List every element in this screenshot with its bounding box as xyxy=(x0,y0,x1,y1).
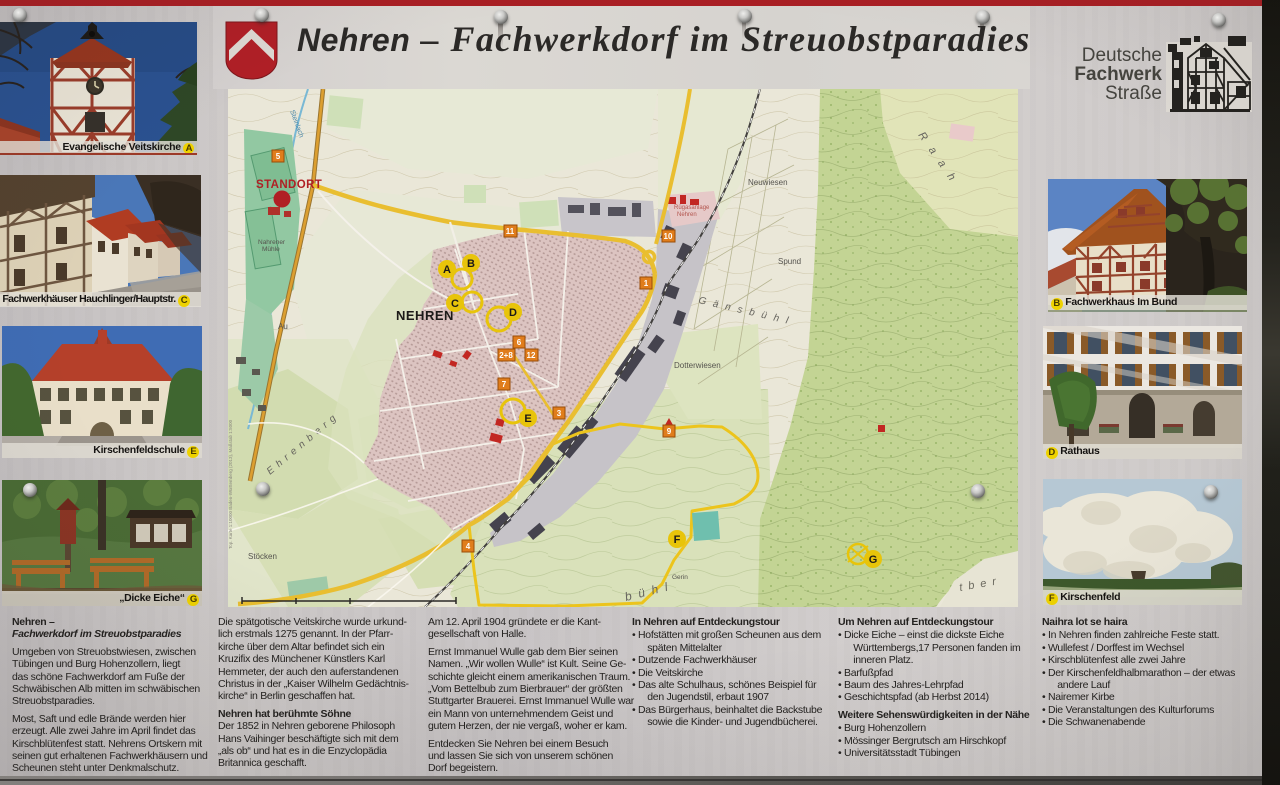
svg-text:3: 3 xyxy=(557,409,562,418)
svg-text:2+8: 2+8 xyxy=(499,351,513,360)
svg-text:10: 10 xyxy=(664,232,673,241)
svg-text:Nehren: Nehren xyxy=(677,212,697,218)
svg-text:E: E xyxy=(524,413,531,425)
svg-text:1: 1 xyxy=(644,279,649,288)
svg-text:Spund: Spund xyxy=(778,257,801,266)
svg-text:Nahrener: Nahrener xyxy=(258,239,286,246)
svg-text:Mühle: Mühle xyxy=(262,246,280,253)
svg-text:9: 9 xyxy=(667,427,672,436)
svg-text:A: A xyxy=(443,264,451,276)
svg-text:Gerin: Gerin xyxy=(672,574,688,581)
svg-text:Dotterwiesen: Dotterwiesen xyxy=(674,361,721,370)
svg-text:Top. Karte 1:10000 Baden-Württ: Top. Karte 1:10000 Baden-Württemberg (20… xyxy=(228,419,233,549)
svg-text:7: 7 xyxy=(502,380,507,389)
svg-text:C: C xyxy=(451,298,459,310)
svg-text:D: D xyxy=(509,307,517,319)
svg-text:Neuwiesen: Neuwiesen xyxy=(748,178,788,187)
svg-text:G: G xyxy=(869,554,878,566)
svg-text:5: 5 xyxy=(276,152,281,161)
svg-text:6: 6 xyxy=(517,338,522,347)
svg-text:12: 12 xyxy=(527,351,536,360)
svg-text:11: 11 xyxy=(506,227,515,236)
svg-text:Stöcken: Stöcken xyxy=(248,552,277,561)
svg-text:B: B xyxy=(467,258,475,270)
svg-text:STANDORT: STANDORT xyxy=(256,179,322,191)
svg-text:Rügasanlage: Rügasanlage xyxy=(674,205,710,211)
svg-text:F: F xyxy=(674,534,681,546)
svg-text:4: 4 xyxy=(466,542,471,551)
svg-text:NEHREN: NEHREN xyxy=(396,308,454,323)
svg-text:Au: Au xyxy=(278,322,288,331)
